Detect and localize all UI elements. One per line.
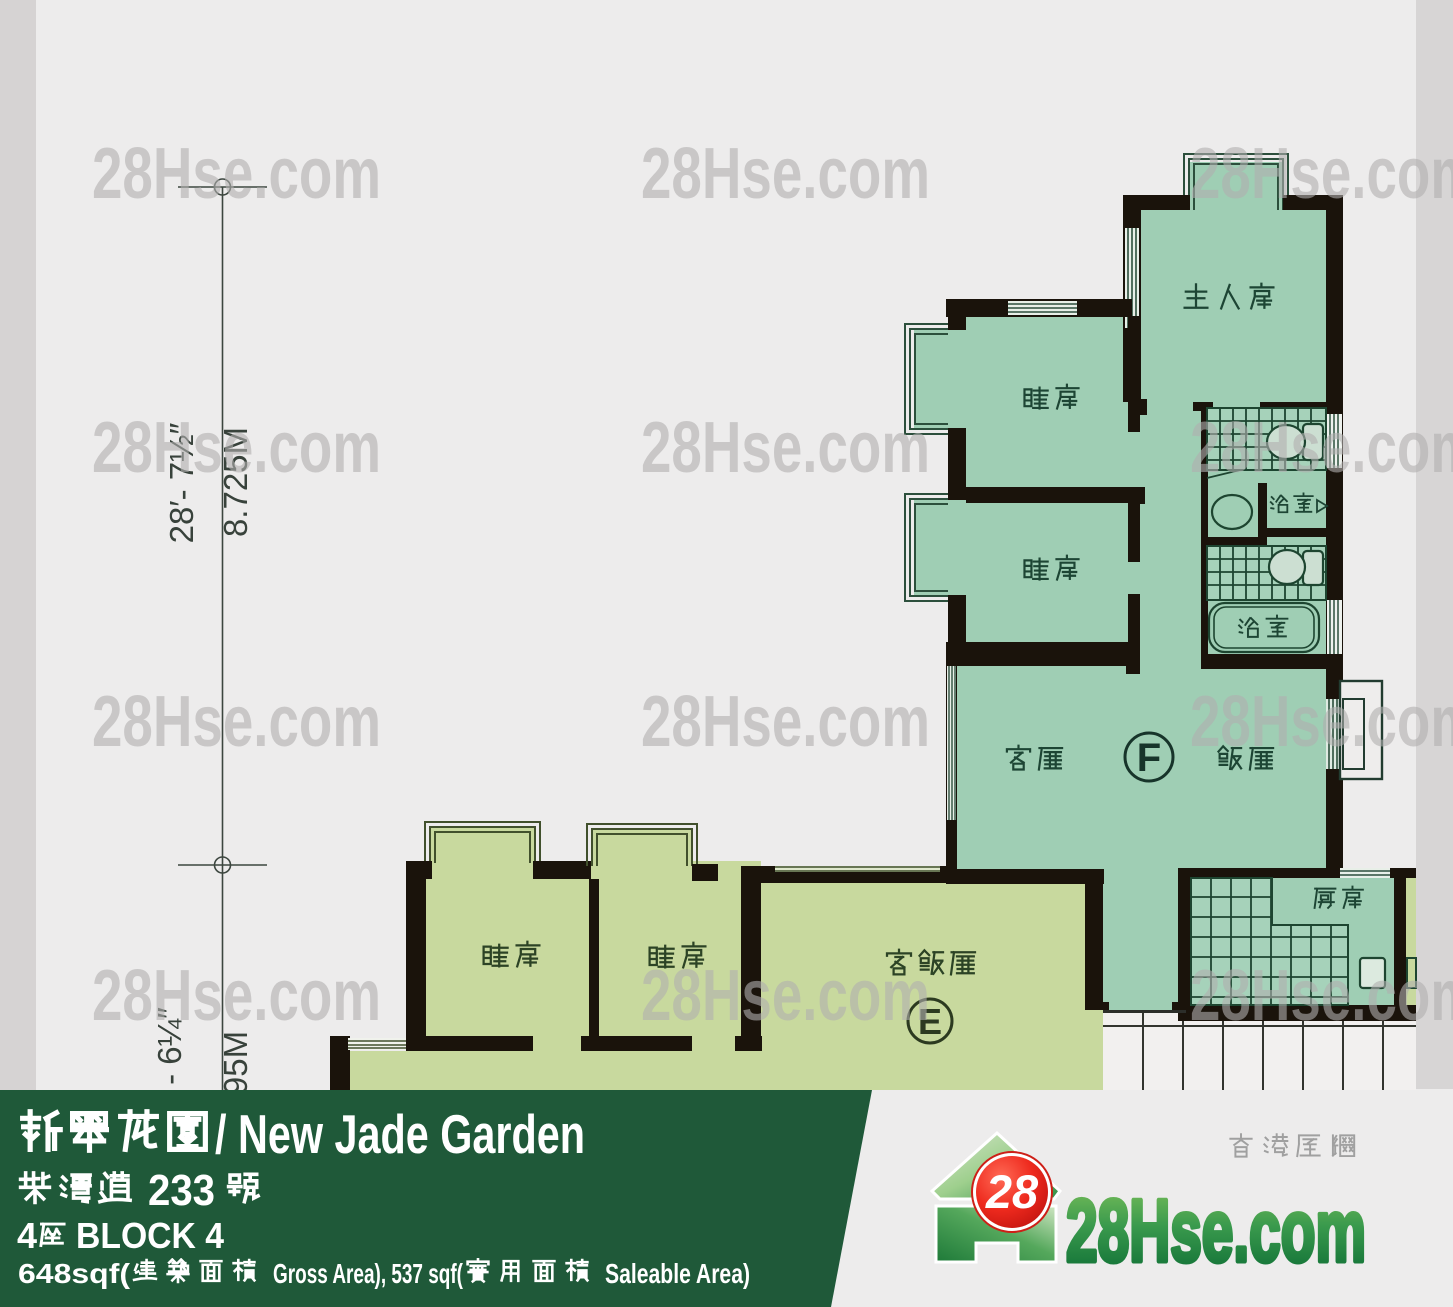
svg-text:4: 4 [17,1215,37,1256]
svg-text:28Hse.com: 28Hse.com [641,956,930,1036]
svg-text:28Hse.com: 28Hse.com [641,134,930,214]
svg-text:28Hse.com: 28Hse.com [1190,956,1453,1036]
svg-text:28Hse.com: 28Hse.com [641,682,930,762]
svg-text:28Hse.com: 28Hse.com [92,682,381,762]
svg-text:F: F [1137,736,1161,780]
svg-text:28Hse.com: 28Hse.com [1190,408,1453,488]
svg-text:28Hse.com: 28Hse.com [92,134,381,214]
svg-text:648sqf(: 648sqf( [18,1258,131,1289]
svg-text:/ New Jade Garden: / New Jade Garden [215,1103,585,1165]
svg-text:28Hse.com: 28Hse.com [641,408,930,488]
svg-text:BLOCK 4: BLOCK 4 [76,1215,224,1256]
svg-text:28Hse.com: 28Hse.com [92,408,381,488]
svg-text:28Hse.com: 28Hse.com [1066,1181,1366,1280]
svg-text:95M: 95M [217,1031,254,1095]
svg-text:233: 233 [148,1166,215,1215]
svg-text:Saleable Area): Saleable Area) [605,1258,750,1289]
svg-text:28Hse.com: 28Hse.com [1190,134,1453,214]
svg-text:28Hse.com: 28Hse.com [1190,682,1453,762]
svg-text:28Hse.com: 28Hse.com [92,956,381,1036]
svg-text:28: 28 [985,1165,1039,1218]
svg-text:Gross Area), 537 sqf(: Gross Area), 537 sqf( [273,1258,463,1289]
